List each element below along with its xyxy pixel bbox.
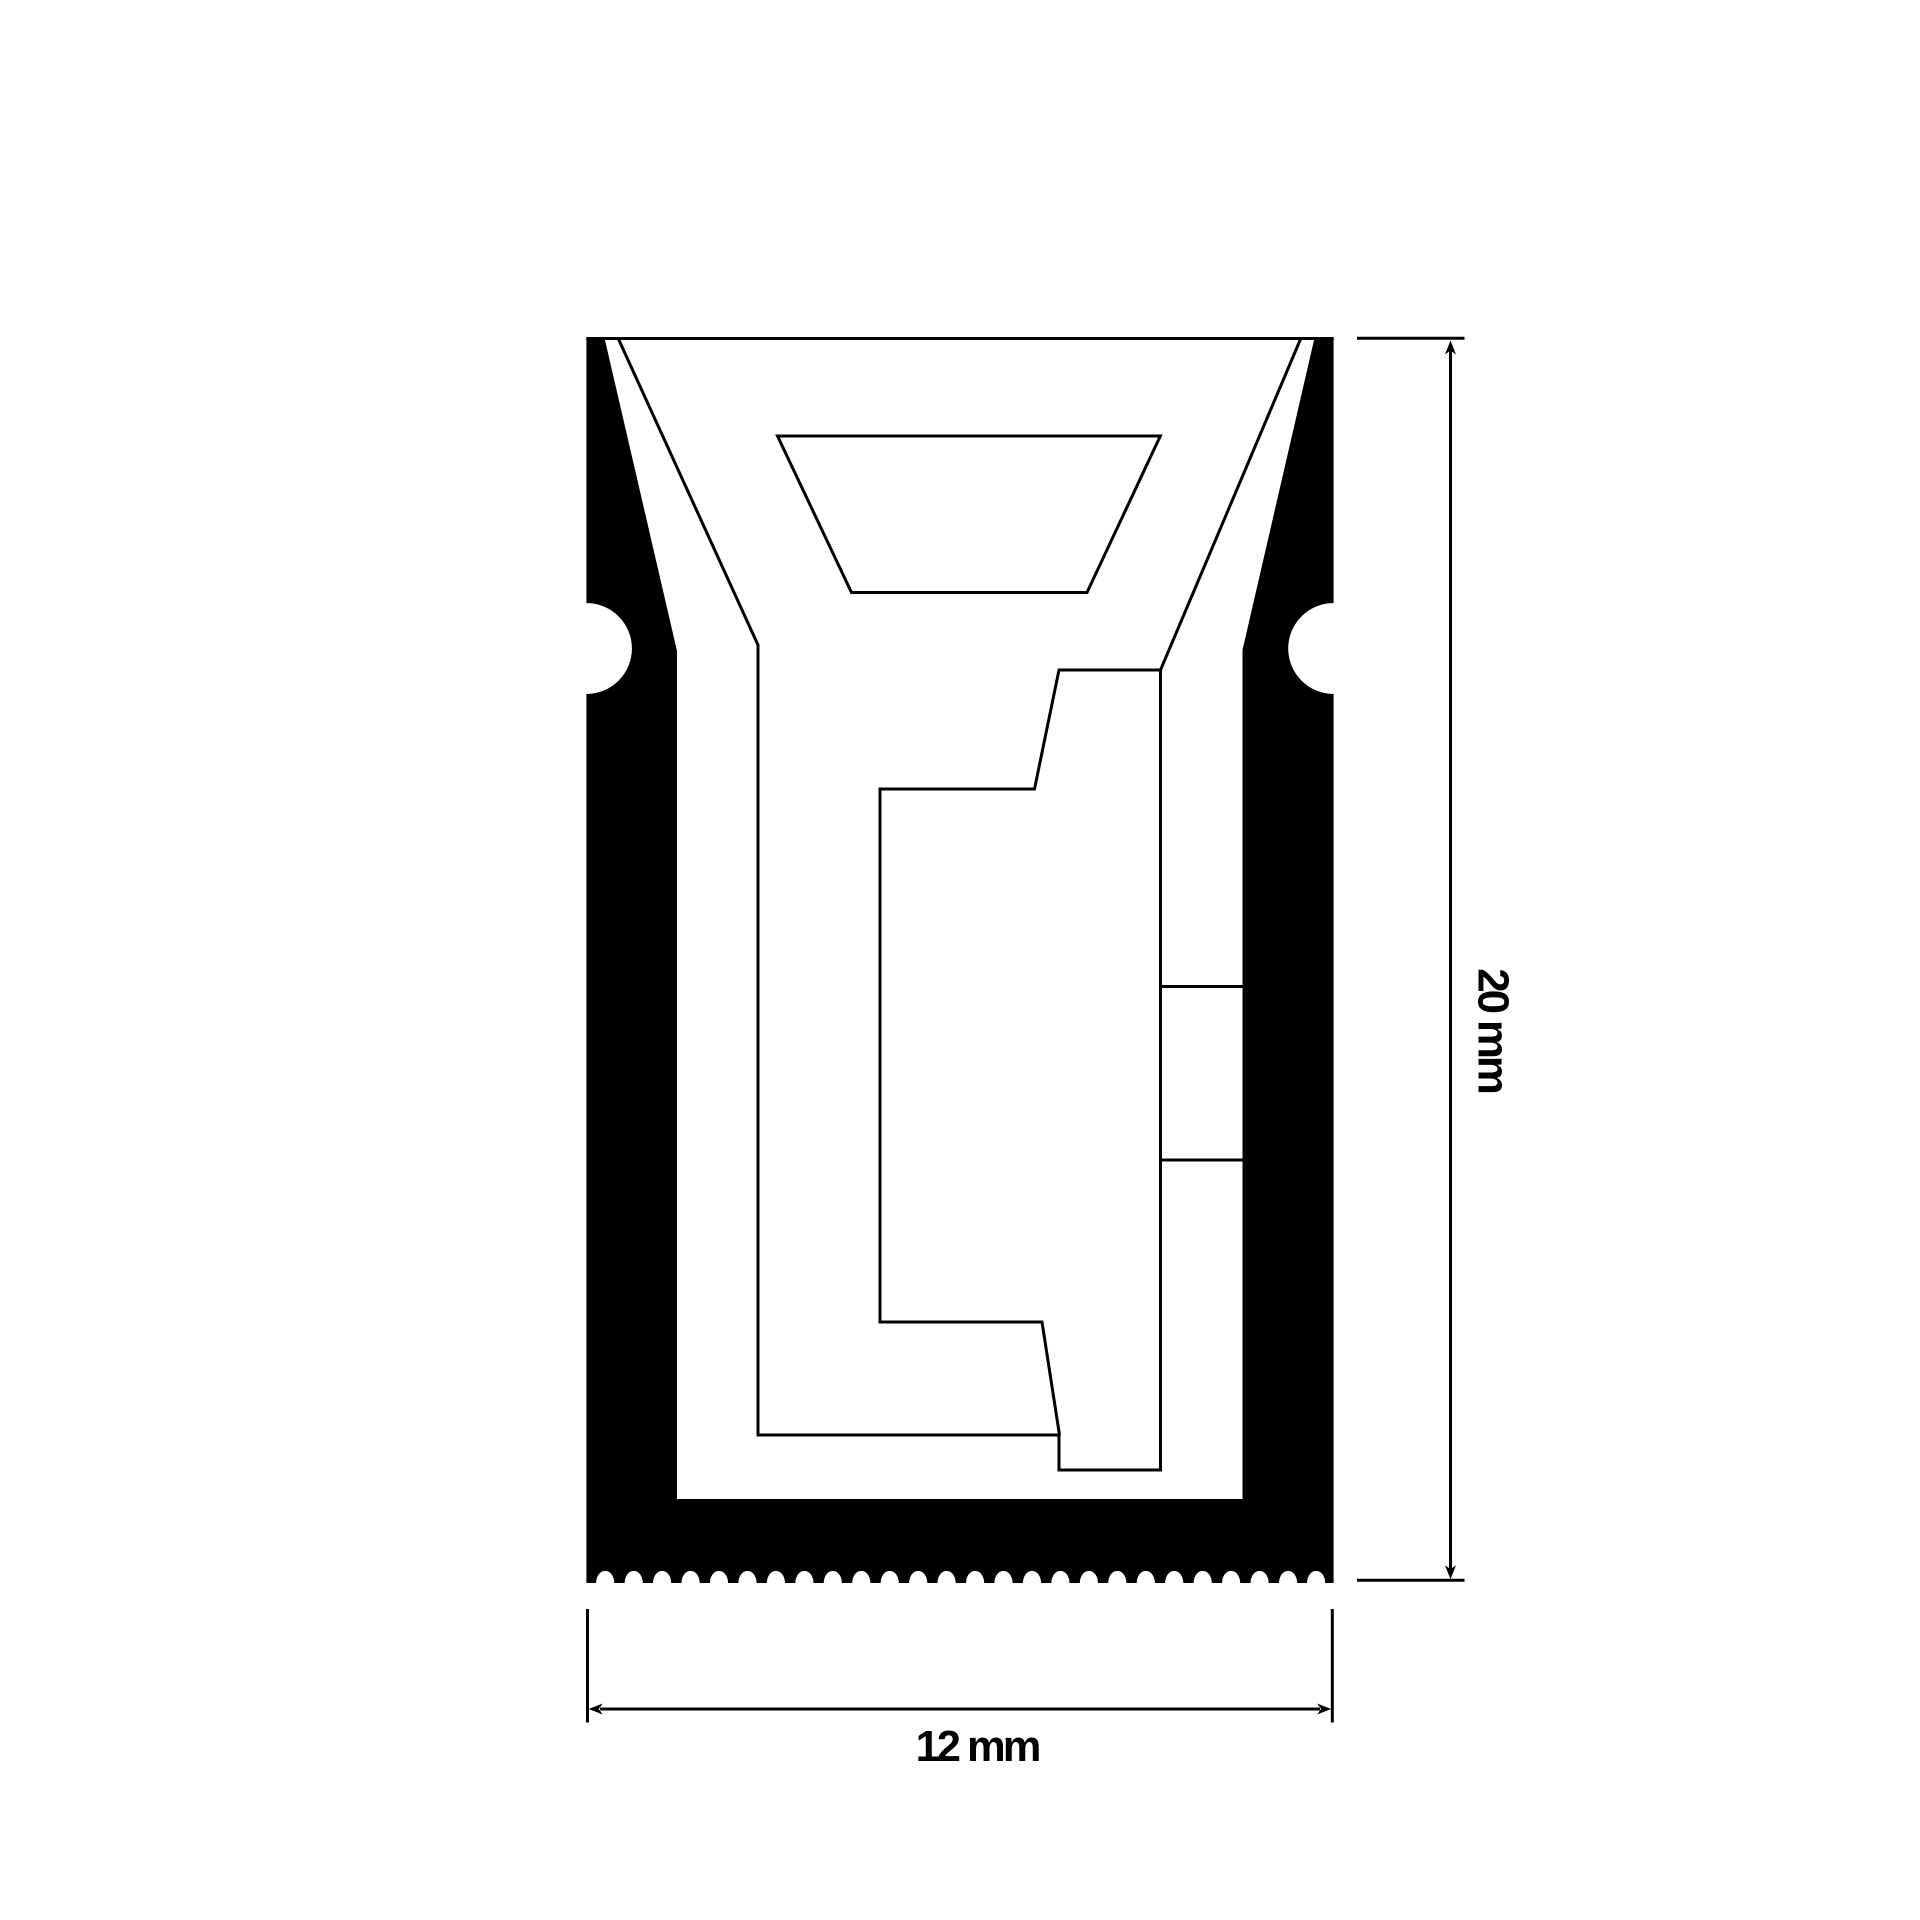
svg-text:20 mm: 20 mm xyxy=(1469,968,1518,1092)
svg-text:12 mm: 12 mm xyxy=(916,1723,1039,1771)
